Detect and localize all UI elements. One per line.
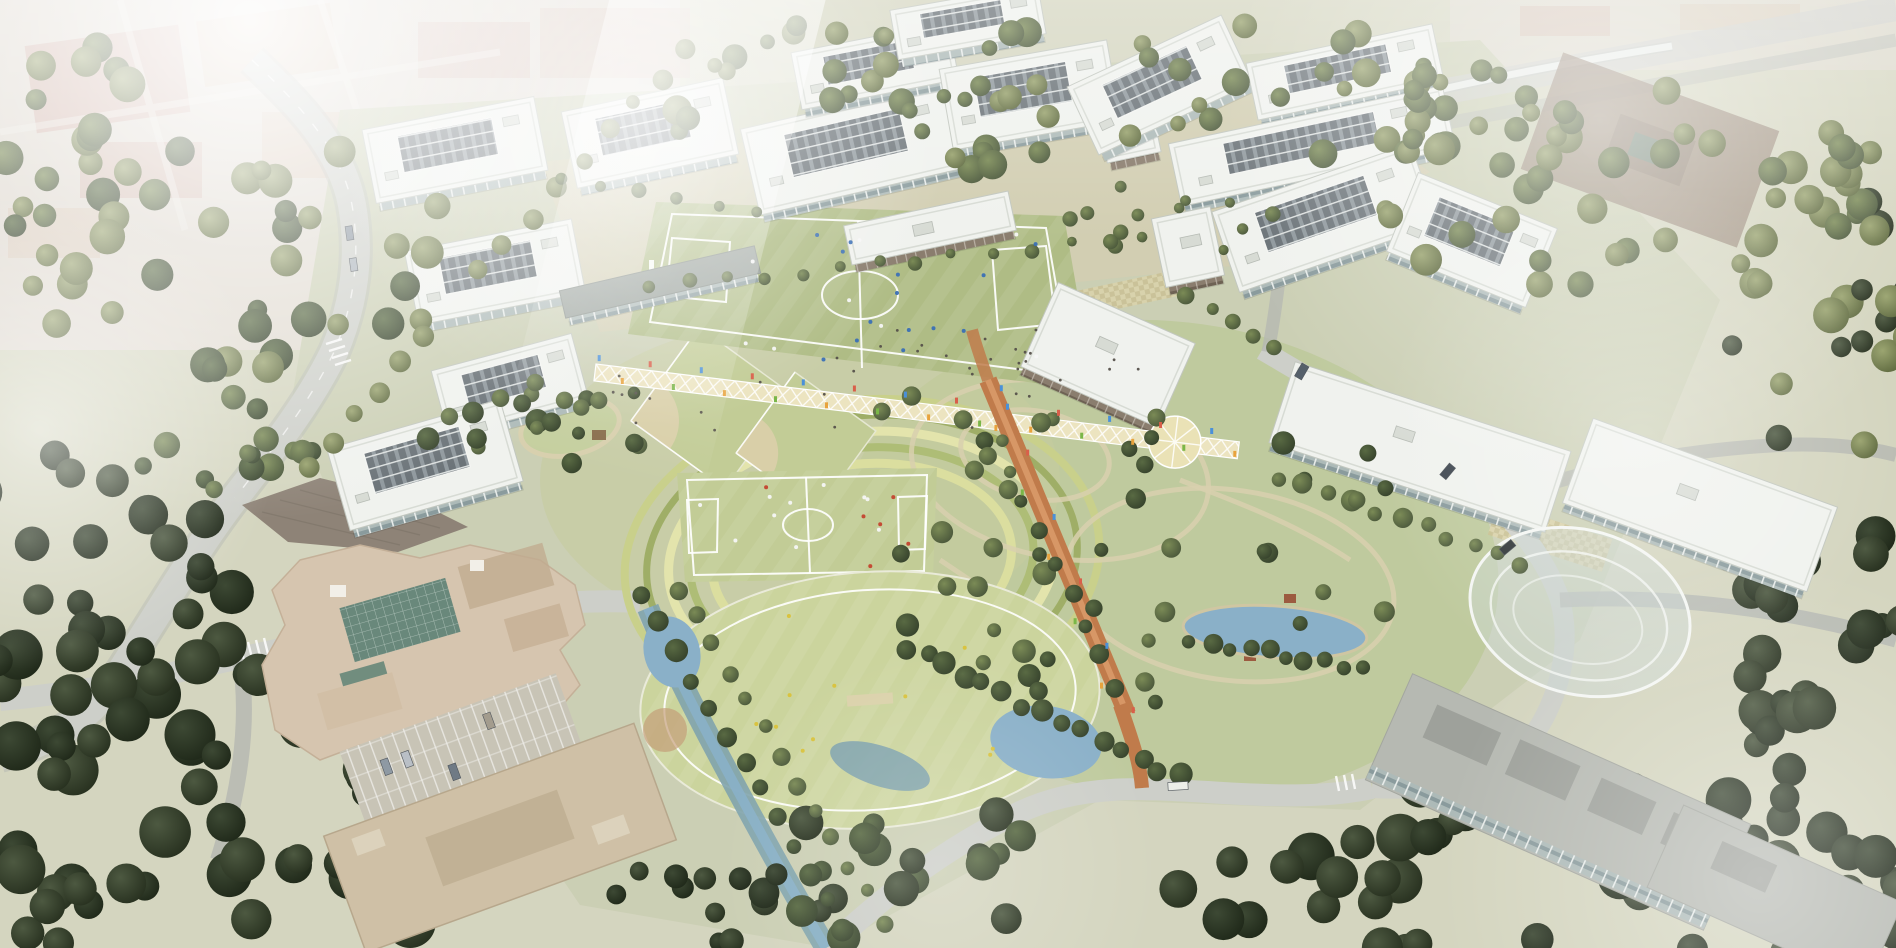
tree [1489, 152, 1515, 178]
person-dot [1113, 358, 1116, 361]
tree [1794, 185, 1823, 214]
tree [1115, 181, 1127, 193]
tree [530, 421, 544, 435]
tree [722, 666, 738, 682]
tree [462, 402, 484, 424]
banner-flag [1159, 422, 1162, 428]
tree [1113, 742, 1129, 758]
person-dot [1024, 360, 1027, 363]
tree [1219, 245, 1229, 255]
person-dot [772, 347, 776, 351]
person-dot [877, 528, 881, 532]
tree [50, 674, 92, 716]
tree [1119, 124, 1141, 146]
tree [1851, 330, 1873, 352]
tree [1293, 616, 1308, 631]
tree [1758, 157, 1787, 186]
tree [202, 741, 231, 770]
tree [26, 51, 56, 81]
person-dot [823, 393, 826, 396]
tree [1266, 340, 1282, 356]
tree [369, 382, 390, 403]
tree [346, 405, 363, 422]
tree [861, 884, 874, 897]
tree [632, 586, 650, 604]
tree [181, 768, 218, 805]
banner-flag [700, 367, 703, 373]
person-dot [635, 422, 638, 425]
tree [1448, 221, 1475, 248]
tree [601, 119, 620, 138]
tree [1261, 640, 1280, 659]
person-dot [822, 483, 826, 487]
tree [63, 872, 96, 905]
tree [831, 919, 854, 942]
person-dot [858, 238, 862, 242]
banner-flag [994, 425, 997, 431]
tree [109, 66, 145, 102]
tree [441, 408, 458, 425]
tree [873, 403, 891, 421]
tree [1309, 139, 1338, 168]
person-dot [906, 542, 910, 546]
tree [1029, 682, 1048, 701]
tree [1013, 699, 1030, 716]
tree [1851, 279, 1873, 301]
rendering-canvas [0, 0, 1896, 948]
banner-flag [1132, 707, 1135, 713]
tree [1650, 139, 1680, 169]
tree [1522, 104, 1540, 122]
tree [56, 630, 99, 673]
tree [1605, 243, 1629, 267]
tree [1770, 783, 1800, 813]
tree [976, 655, 991, 670]
tree [1352, 58, 1381, 87]
tree [1825, 213, 1852, 240]
tree [1170, 116, 1186, 132]
banner-flag [853, 386, 856, 392]
tree [47, 732, 76, 761]
tree [1577, 194, 1607, 224]
person-dot [982, 273, 986, 277]
person-dot [891, 495, 895, 499]
tree [1079, 620, 1093, 634]
tree [1733, 660, 1766, 693]
tree [417, 427, 440, 450]
person-dot [895, 291, 899, 295]
tree [957, 92, 972, 107]
banner-flag [1105, 643, 1108, 649]
tree [825, 22, 848, 45]
person-dot [754, 722, 758, 726]
tree [683, 273, 698, 288]
gazebo [592, 430, 606, 440]
tree [205, 481, 222, 498]
banner-flag [876, 408, 879, 414]
tree [1330, 29, 1355, 54]
tree [467, 429, 487, 449]
tree [1317, 652, 1333, 668]
tree [820, 88, 846, 114]
tree [787, 839, 802, 854]
tree [252, 351, 284, 383]
tree [1356, 660, 1370, 674]
person-dot [1059, 379, 1062, 382]
person-dot [962, 329, 966, 333]
tree [1294, 652, 1313, 671]
tree [372, 307, 404, 339]
person-dot [713, 429, 716, 432]
tree [37, 757, 71, 791]
tree [175, 639, 220, 684]
banner-flag [1021, 489, 1024, 495]
tree [878, 28, 894, 44]
tree [938, 577, 957, 596]
tree [135, 457, 152, 474]
person-dot [1137, 368, 1140, 371]
person-dot [700, 411, 703, 414]
tree [966, 846, 1000, 880]
person-dot [903, 694, 907, 698]
tree [664, 864, 688, 888]
person-dot [866, 497, 870, 501]
tree [1040, 651, 1056, 667]
tree [1094, 732, 1114, 752]
tree [1222, 68, 1250, 96]
tree [1272, 431, 1296, 455]
tree [772, 748, 790, 766]
tree [324, 136, 356, 168]
tree [291, 302, 327, 338]
tree [1204, 634, 1224, 654]
tree [1132, 209, 1145, 222]
tree [1854, 835, 1896, 878]
person-dot [833, 426, 836, 429]
tree [1137, 232, 1148, 243]
tree [786, 895, 818, 927]
tree [239, 445, 256, 462]
tree [577, 153, 593, 169]
tree [1103, 234, 1118, 249]
person-dot [759, 381, 762, 384]
person-dot [984, 338, 987, 341]
tree [1065, 585, 1083, 603]
tree [988, 248, 999, 259]
tree [1025, 244, 1040, 259]
person-dot [841, 250, 845, 254]
tree [1271, 88, 1290, 107]
tree [23, 584, 53, 614]
tree [897, 640, 917, 660]
tree [275, 200, 297, 222]
tree [751, 207, 762, 218]
rooftop-unit [907, 37, 921, 47]
tree [555, 173, 567, 185]
banner-flag [955, 398, 958, 404]
tree [1853, 536, 1889, 572]
tree [1148, 409, 1166, 427]
tree [186, 500, 224, 538]
person-dot [1029, 352, 1032, 355]
person-dot [788, 501, 792, 505]
person-dot [1014, 233, 1018, 237]
tree [523, 209, 544, 230]
person-dot [849, 240, 853, 244]
tree [1321, 485, 1336, 500]
tree [722, 271, 733, 282]
tree [670, 582, 688, 600]
tree [1031, 699, 1053, 721]
tree [1139, 47, 1159, 67]
tree [556, 392, 573, 409]
tree [1203, 898, 1245, 940]
tree [1653, 77, 1681, 105]
banner-flag [1108, 416, 1111, 422]
tree [106, 864, 146, 904]
tree [206, 803, 245, 842]
tree [809, 804, 822, 817]
tree [841, 862, 855, 876]
tree [1747, 271, 1773, 297]
person-dot [862, 514, 866, 518]
tree [1161, 538, 1181, 558]
person-dot [794, 545, 798, 549]
tree [625, 434, 644, 453]
tree [788, 778, 806, 796]
tree [1032, 547, 1047, 562]
tree [126, 637, 155, 666]
tree [998, 20, 1024, 46]
tree [1813, 297, 1849, 333]
tree [799, 864, 822, 887]
tree [1722, 335, 1742, 355]
person-dot [612, 391, 615, 394]
banner-flag [751, 373, 754, 379]
tree [173, 599, 204, 630]
tree [1037, 105, 1060, 128]
tree [931, 521, 953, 543]
tree [729, 867, 752, 890]
person-dot [815, 233, 819, 237]
tree [972, 673, 989, 690]
banner-flag [1182, 445, 1185, 451]
person-dot [772, 513, 776, 517]
tree [752, 779, 768, 795]
person-dot [991, 747, 995, 751]
tree [1144, 430, 1159, 445]
tree [1403, 129, 1424, 150]
person-dot [1018, 362, 1021, 365]
tree [759, 719, 773, 733]
tree [141, 259, 173, 291]
tree [984, 538, 1003, 557]
banner-flag [1100, 683, 1103, 689]
park-pavilion [1284, 594, 1296, 603]
tree [1526, 271, 1553, 298]
tree [26, 89, 47, 110]
banner-flag [904, 392, 907, 398]
person-dot [896, 329, 899, 332]
tree [822, 59, 846, 83]
person-dot [698, 503, 702, 507]
tree [390, 271, 420, 301]
tree [1257, 544, 1272, 559]
tree [35, 167, 60, 192]
person-dot [868, 564, 872, 568]
person-dot [1108, 368, 1111, 371]
tree [978, 150, 1007, 179]
tree [1377, 480, 1393, 496]
tree [631, 183, 646, 198]
tree [738, 692, 752, 706]
tree [298, 206, 322, 230]
person-dot [811, 737, 815, 741]
bus [1168, 781, 1188, 790]
tree [573, 399, 589, 415]
tree [1072, 720, 1089, 737]
tree [979, 447, 997, 465]
tree [1126, 488, 1146, 508]
tree [630, 862, 649, 881]
tree [198, 207, 229, 238]
tree [1770, 373, 1793, 396]
tree [36, 244, 58, 266]
tree [606, 885, 626, 905]
tree [492, 389, 510, 407]
person-dot [634, 392, 637, 395]
tree [78, 113, 112, 147]
person-dot [822, 358, 826, 362]
banner-flag [825, 402, 828, 408]
banner-flag [1131, 439, 1134, 445]
person-dot [879, 345, 882, 348]
tree [821, 892, 836, 907]
person-dot [855, 339, 859, 343]
tree [1223, 643, 1236, 656]
tree [1410, 819, 1446, 855]
tree [982, 40, 998, 56]
tree [384, 233, 410, 259]
tree [717, 727, 737, 747]
tree [976, 432, 994, 450]
tree [1374, 601, 1395, 622]
tree [411, 236, 444, 269]
tree [1469, 117, 1488, 136]
banner-flag [1080, 433, 1083, 439]
tree [1028, 141, 1050, 163]
tree [1504, 117, 1529, 142]
tree [101, 301, 124, 324]
tree [914, 123, 930, 139]
tree [139, 179, 171, 211]
tree [1142, 634, 1156, 648]
banner-flag [1047, 554, 1050, 560]
tree [284, 844, 313, 873]
tree [987, 623, 1001, 637]
person-dot [847, 298, 851, 302]
tree [665, 639, 688, 662]
tree [590, 392, 607, 409]
tree [1014, 495, 1027, 508]
tree [765, 863, 787, 885]
tree [1793, 686, 1837, 730]
tree [967, 576, 988, 597]
tree [4, 214, 27, 237]
tree [688, 606, 705, 623]
person-dot [901, 348, 905, 352]
person-dot [751, 260, 755, 264]
tree [1180, 195, 1191, 206]
person-dot [907, 328, 911, 332]
tree [1536, 144, 1562, 170]
tree [492, 235, 512, 255]
tree [221, 385, 246, 410]
person-dot [1035, 329, 1038, 332]
banner-flag [1053, 514, 1056, 520]
tree [1766, 188, 1786, 208]
tree [1337, 81, 1353, 97]
tree [1744, 224, 1778, 258]
tree [1698, 129, 1726, 157]
tree [896, 613, 919, 636]
person-dot [916, 350, 919, 353]
tree [849, 823, 881, 855]
tree [1005, 820, 1036, 851]
tree [884, 871, 919, 906]
tree [965, 461, 984, 480]
tree [90, 219, 126, 255]
person-dot [832, 684, 836, 688]
person-dot [1024, 351, 1027, 354]
tree [945, 148, 966, 169]
tree [954, 410, 973, 429]
tree [1378, 203, 1403, 228]
tree [786, 15, 807, 36]
person-dot [764, 485, 768, 489]
tree [327, 314, 349, 336]
person-dot [788, 693, 792, 697]
tree [527, 374, 544, 391]
tree [991, 681, 1012, 702]
person-dot [744, 341, 748, 345]
tree [1232, 14, 1257, 39]
tree [937, 89, 951, 103]
tree [1292, 473, 1312, 493]
tree [705, 903, 725, 923]
tree [875, 255, 886, 266]
tree [1004, 466, 1016, 478]
tree [1492, 206, 1520, 234]
tree [1368, 507, 1382, 521]
tree [1773, 753, 1807, 787]
tree [999, 480, 1018, 499]
tree [1359, 445, 1376, 462]
tree [1828, 134, 1856, 162]
tree [413, 326, 434, 347]
tree [424, 193, 450, 219]
tree [997, 85, 1021, 109]
tree [1653, 228, 1678, 253]
banner-flag [1026, 450, 1029, 456]
tree [946, 249, 956, 259]
person-dot [968, 367, 971, 370]
tree [1512, 557, 1529, 574]
tree [1279, 651, 1293, 665]
tree [1225, 198, 1235, 208]
tree [299, 457, 320, 478]
person-dot [868, 320, 872, 324]
